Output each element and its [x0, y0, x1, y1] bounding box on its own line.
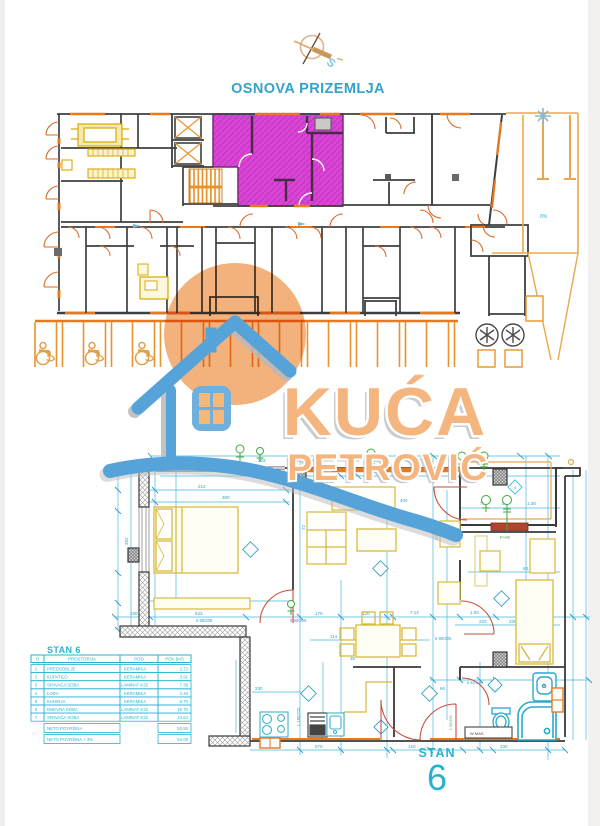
svg-text:300: 300 [222, 495, 230, 500]
svg-text:O: O [36, 657, 40, 662]
svg-text:523: 523 [195, 611, 203, 616]
svg-text:6 90/205: 6 90/205 [435, 636, 452, 641]
svg-text:NETO POVRŠINA + 3%: NETO POVRŠINA + 3% [47, 737, 93, 742]
svg-text:L 90/205: L 90/205 [449, 715, 453, 730]
svg-text:212: 212 [198, 484, 206, 489]
svg-text:54.00: 54.00 [177, 737, 188, 742]
svg-text:230: 230 [500, 744, 508, 749]
svg-text:170: 170 [315, 611, 323, 616]
svg-text:1.28: 1.28 [527, 501, 536, 506]
svg-text:3.91: 3.91 [180, 675, 189, 680]
svg-text:53.55: 53.55 [177, 726, 188, 731]
svg-text:OSNOVA PRIZEMLJA: OSNOVA PRIZEMLJA [231, 81, 385, 97]
svg-text:KERAMIKA: KERAMIKA [124, 675, 146, 680]
svg-text:0.90/205: 0.90/205 [196, 618, 213, 623]
svg-text:DNEVNA SOBA: DNEVNA SOBA [47, 707, 78, 712]
svg-text:PROSTORIJA: PROSTORIJA [68, 657, 96, 662]
svg-text:7.14: 7.14 [410, 610, 419, 615]
svg-text:6.70: 6.70 [180, 699, 189, 704]
svg-text:7.39: 7.39 [180, 683, 189, 688]
svg-text:KUĆA: KUĆA [283, 374, 487, 450]
svg-text:570: 570 [315, 744, 323, 749]
svg-text:16.70: 16.70 [177, 707, 188, 712]
svg-text:60: 60 [440, 686, 446, 691]
svg-text:400: 400 [400, 498, 408, 503]
svg-text:2.40: 2.40 [180, 691, 189, 696]
svg-text:LAMINAT K32: LAMINAT K32 [121, 707, 149, 712]
svg-text:KUHINJA: KUHINJA [47, 699, 66, 704]
svg-text:L 180/220: L 180/220 [296, 707, 301, 726]
svg-text:36: 36 [350, 656, 356, 661]
svg-text:150: 150 [130, 611, 138, 616]
svg-text:1.93: 1.93 [470, 610, 479, 615]
svg-text:72: 72 [301, 524, 306, 530]
svg-text:KERAMIKA: KERAMIKA [124, 691, 146, 696]
svg-text:2.72: 2.72 [180, 667, 189, 672]
svg-text:13.64: 13.64 [177, 715, 188, 720]
svg-text:KERAMIKA: KERAMIKA [124, 667, 146, 672]
svg-text:LOĐA: LOĐA [47, 691, 59, 696]
svg-text:120: 120 [408, 744, 416, 749]
svg-text:PREDSOBLJE: PREDSOBLJE [47, 667, 76, 672]
svg-text:392: 392 [124, 537, 129, 545]
svg-text:8%: 8% [540, 214, 548, 220]
svg-text:KUPATILO: KUPATILO [47, 675, 68, 680]
svg-text:W MAS: W MAS [470, 731, 484, 736]
svg-text:SPAVAĆA SOBA: SPAVAĆA SOBA [47, 715, 79, 720]
svg-text:POD: POD [134, 657, 144, 662]
svg-text:SPAVAĆA SOBA: SPAVAĆA SOBA [47, 683, 79, 688]
svg-text:STAN 6: STAN 6 [47, 645, 81, 655]
svg-text:230: 230 [255, 686, 263, 691]
svg-text:220: 220 [479, 619, 487, 624]
svg-text:LAMINAT K32: LAMINAT K32 [121, 683, 149, 688]
svg-text:114: 114 [330, 634, 338, 639]
svg-text:8 90/205: 8 90/205 [467, 681, 482, 685]
svg-text:KERAMIKA: KERAMIKA [124, 699, 146, 704]
svg-text:6: 6 [427, 757, 447, 798]
svg-text:POV (m²): POV (m²) [165, 657, 184, 662]
svg-text:NETO POVRŠINA: NETO POVRŠINA [47, 726, 82, 731]
svg-text:LAMINAT K32: LAMINAT K32 [121, 715, 149, 720]
svg-text:203: 203 [258, 458, 266, 463]
svg-text:P+90: P+90 [500, 535, 511, 540]
svg-text:PETROVIĆ: PETROVIĆ [287, 446, 488, 488]
